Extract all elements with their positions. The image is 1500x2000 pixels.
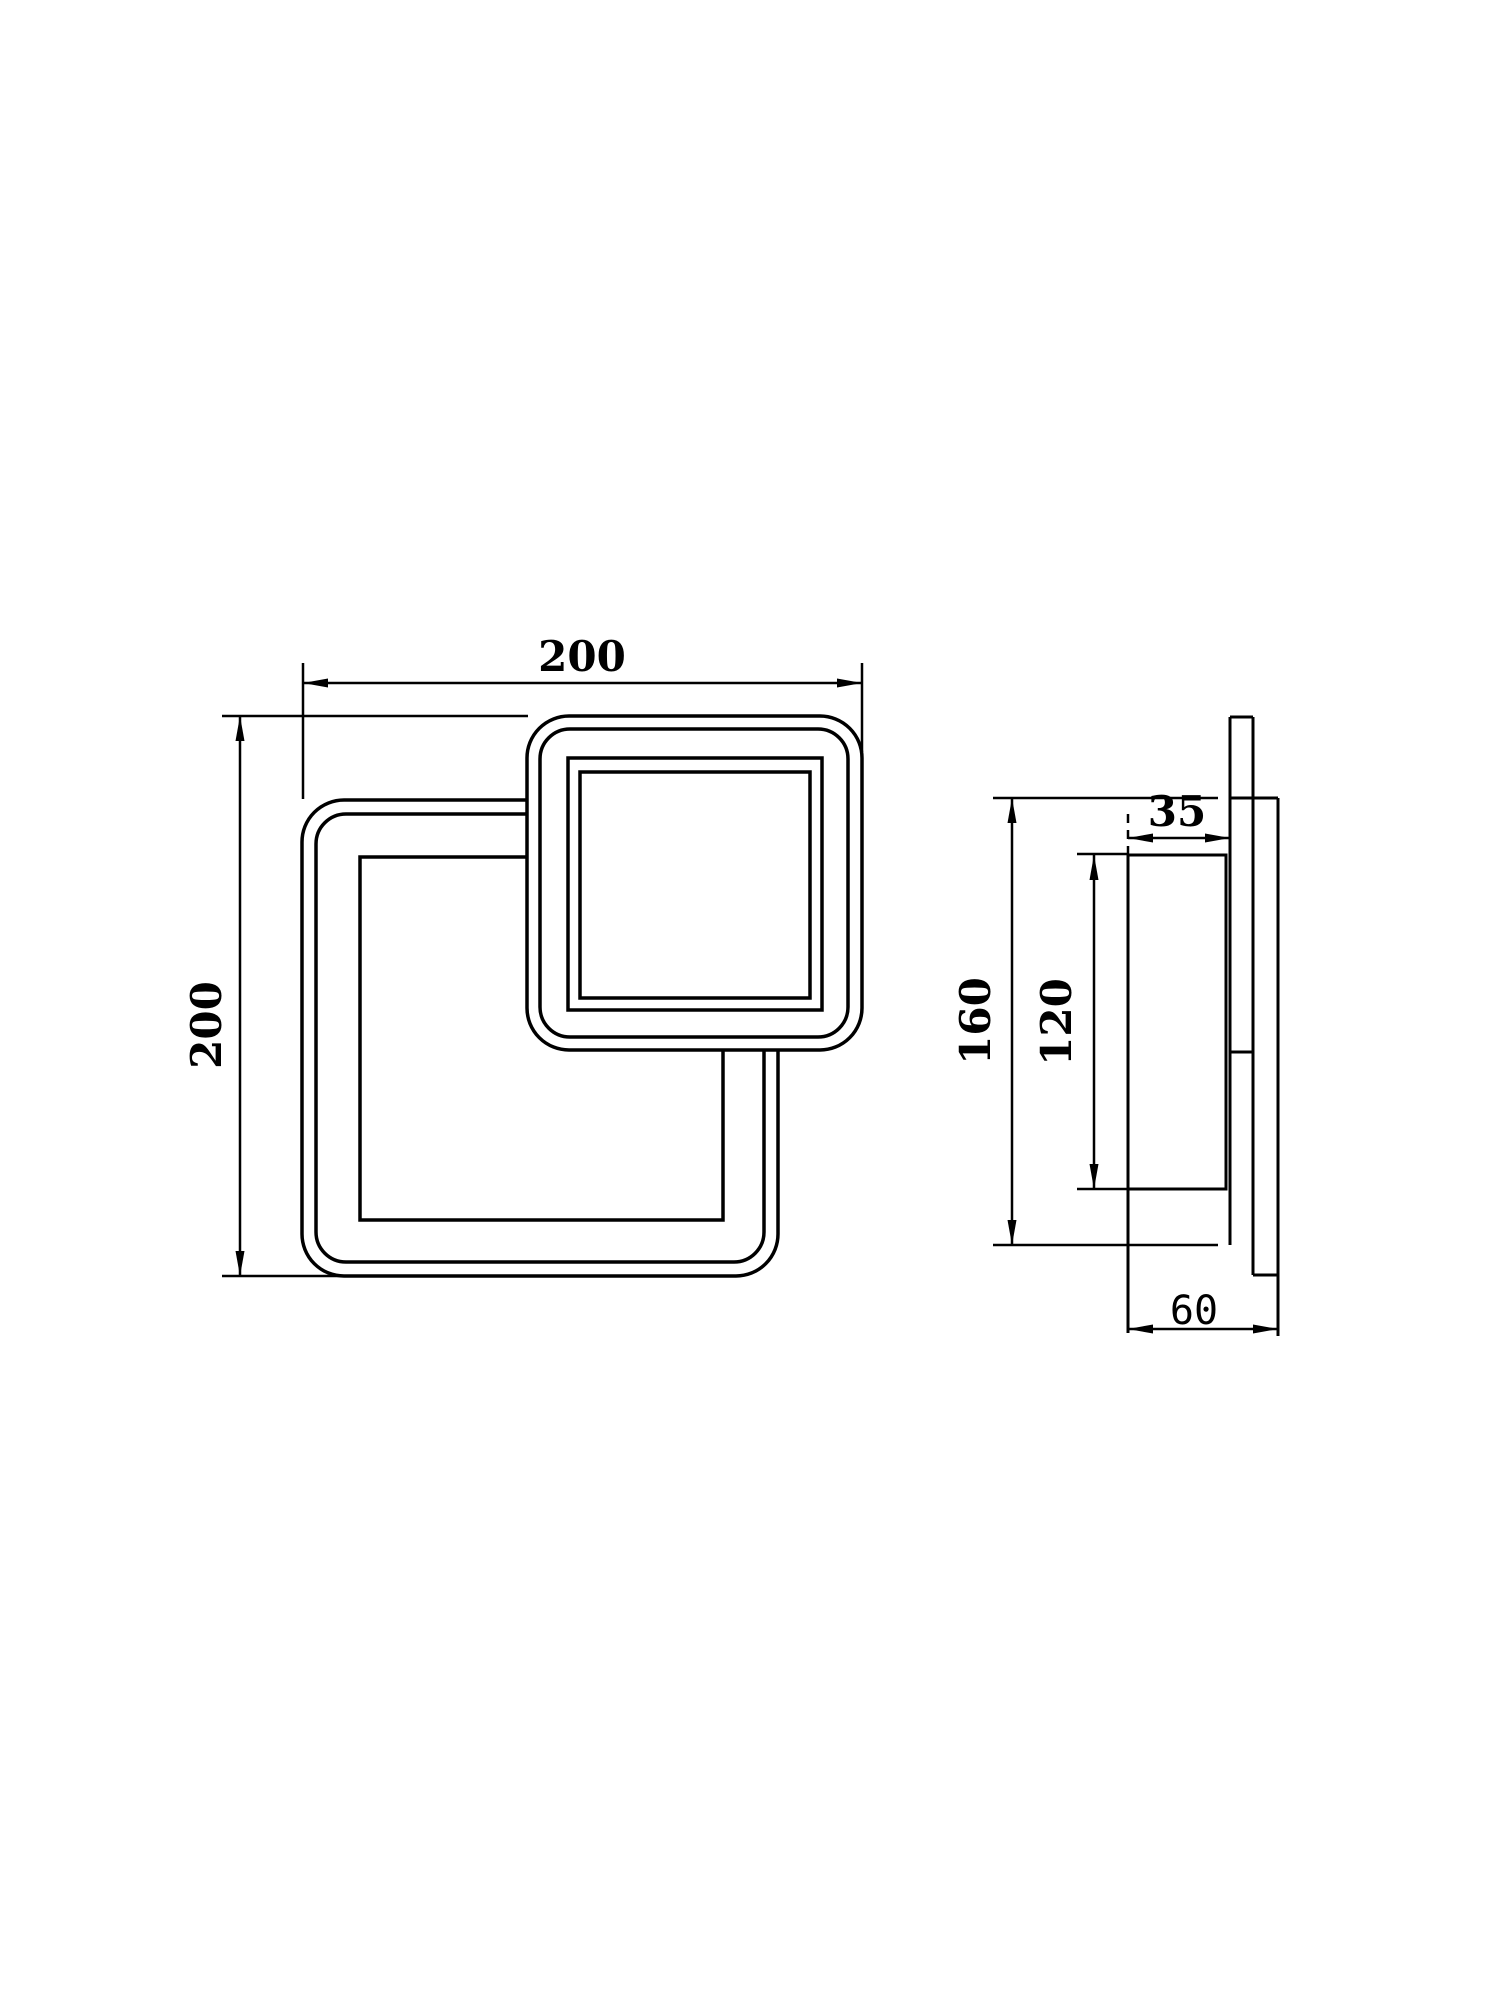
side-body-box (1128, 814, 1226, 1333)
side-large-square-profile (1253, 798, 1278, 1336)
side-height-dimension (993, 798, 1218, 1245)
arrowhead-right-icon (1253, 1325, 1278, 1334)
arrowhead-right-icon (837, 679, 862, 688)
arrowhead-left-icon (1128, 834, 1153, 843)
side-total-depth-dimension (1128, 1325, 1278, 1334)
front-view (222, 663, 862, 1276)
arrowhead-down-icon (236, 1251, 245, 1276)
front-small-square (527, 716, 862, 1050)
side-body-box-outline (1128, 855, 1226, 1189)
side-depth-dimension (1128, 834, 1230, 843)
arrowhead-left-icon (303, 679, 328, 688)
side-mount-plate-profile (1230, 717, 1278, 1275)
technical-drawing (0, 0, 1500, 2000)
arrowhead-up-icon (236, 716, 245, 741)
arrowhead-right-icon (1205, 834, 1230, 843)
arrowhead-up-icon (1090, 855, 1099, 880)
arrowhead-down-icon (1008, 1220, 1017, 1245)
arrowhead-up-icon (1008, 798, 1017, 823)
arrowhead-down-icon (1090, 1164, 1099, 1189)
side-view (993, 717, 1278, 1336)
drawing-canvas: 200 200 35 160 120 60 (0, 0, 1500, 2000)
arrowhead-left-icon (1128, 1325, 1153, 1334)
side-inner-height-dimension (1077, 854, 1128, 1189)
